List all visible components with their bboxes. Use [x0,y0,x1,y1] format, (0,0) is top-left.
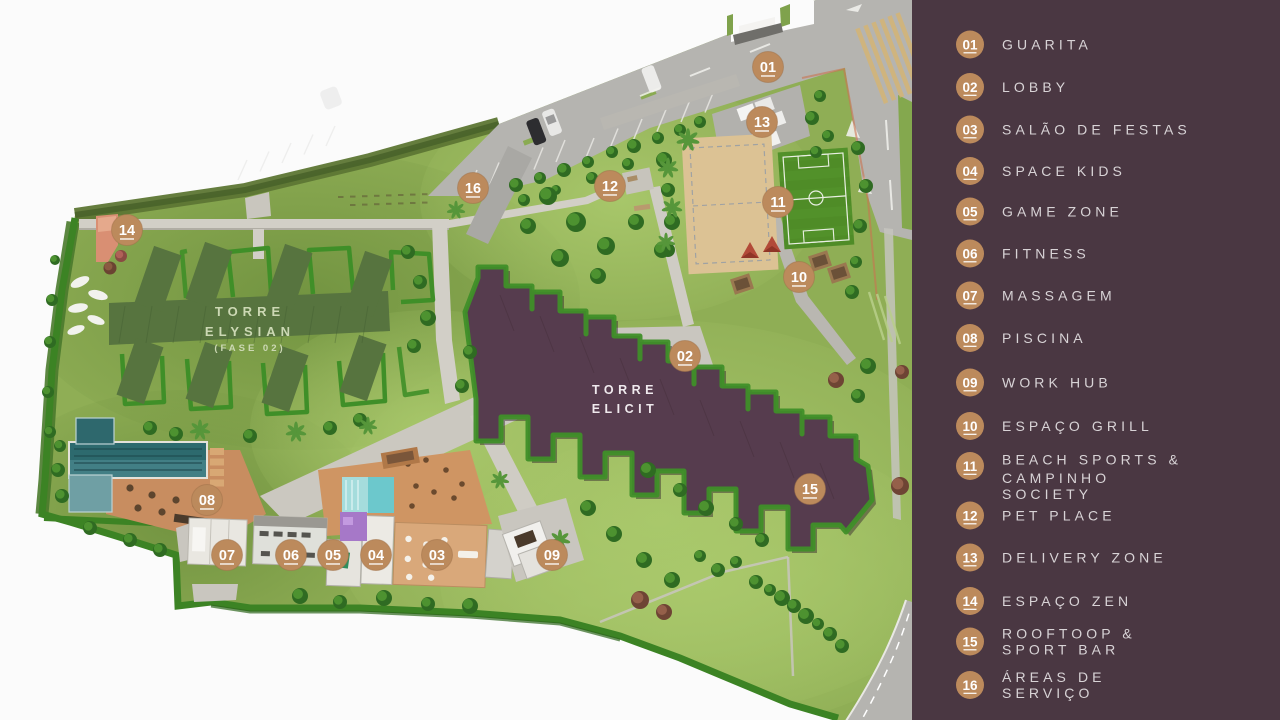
svg-text:06: 06 [283,548,299,564]
svg-text:LOBBY: LOBBY [1002,79,1069,95]
svg-text:ELYSIAN: ELYSIAN [205,324,295,339]
svg-text:DELIVERY ZONE: DELIVERY ZONE [1002,549,1167,565]
svg-text:13: 13 [962,550,978,565]
svg-text:12: 12 [602,179,618,195]
svg-text:04: 04 [962,164,978,179]
svg-text:11: 11 [963,459,978,474]
svg-text:05: 05 [325,548,341,564]
svg-text:14: 14 [119,223,135,239]
svg-text:11: 11 [770,195,785,211]
svg-text:ELICIT: ELICIT [592,402,659,416]
svg-text:(FASE 02): (FASE 02) [214,343,285,354]
svg-text:01: 01 [760,60,776,76]
svg-text:02: 02 [962,80,977,95]
svg-text:06: 06 [962,246,978,261]
svg-text:PISCINA: PISCINA [1002,330,1087,346]
svg-text:ÁREAS DE: ÁREAS DE [1002,669,1106,685]
svg-text:15: 15 [802,482,818,498]
svg-text:ESPAÇO GRILL: ESPAÇO GRILL [1002,418,1153,434]
svg-text:SPACE KIDS: SPACE KIDS [1002,163,1126,179]
svg-text:ROOFTOOP &: ROOFTOOP & [1002,625,1136,641]
svg-text:15: 15 [962,634,978,649]
svg-text:FITNESS: FITNESS [1002,245,1090,261]
svg-text:07: 07 [219,548,235,564]
svg-text:04: 04 [368,548,384,564]
svg-text:07: 07 [962,288,977,303]
svg-text:SALÃO DE FESTAS: SALÃO DE FESTAS [1002,121,1191,137]
svg-text:03: 03 [962,122,978,137]
svg-text:01: 01 [962,37,978,52]
svg-text:08: 08 [962,331,978,346]
svg-text:13: 13 [754,115,770,131]
svg-text:05: 05 [962,204,978,219]
svg-text:10: 10 [962,419,977,434]
svg-text:GAME ZONE: GAME ZONE [1002,203,1123,219]
svg-text:09: 09 [544,548,560,564]
svg-text:14: 14 [962,594,978,609]
svg-text:CAMPINHO: CAMPINHO [1002,470,1110,486]
svg-text:16: 16 [962,678,978,693]
svg-text:GUARITA: GUARITA [1002,36,1092,52]
svg-text:10: 10 [791,270,807,286]
svg-text:08: 08 [199,493,215,509]
svg-text:PET PLACE: PET PLACE [1002,507,1116,523]
svg-text:SOCIETY: SOCIETY [1002,486,1092,502]
svg-text:SERVIÇO: SERVIÇO [1002,685,1093,701]
svg-text:TORRE: TORRE [215,304,285,319]
svg-text:03: 03 [429,548,445,564]
svg-text:TORRE: TORRE [592,383,658,397]
svg-text:BEACH SPORTS &: BEACH SPORTS & [1002,451,1182,467]
svg-text:ESPAÇO ZEN: ESPAÇO ZEN [1002,593,1132,609]
svg-text:02: 02 [677,349,693,365]
svg-text:09: 09 [962,375,977,390]
svg-text:12: 12 [962,508,977,523]
svg-text:MASSAGEM: MASSAGEM [1002,287,1116,303]
svg-text:16: 16 [465,181,481,197]
svg-text:SPORT BAR: SPORT BAR [1002,641,1119,657]
svg-text:WORK HUB: WORK HUB [1002,374,1112,390]
